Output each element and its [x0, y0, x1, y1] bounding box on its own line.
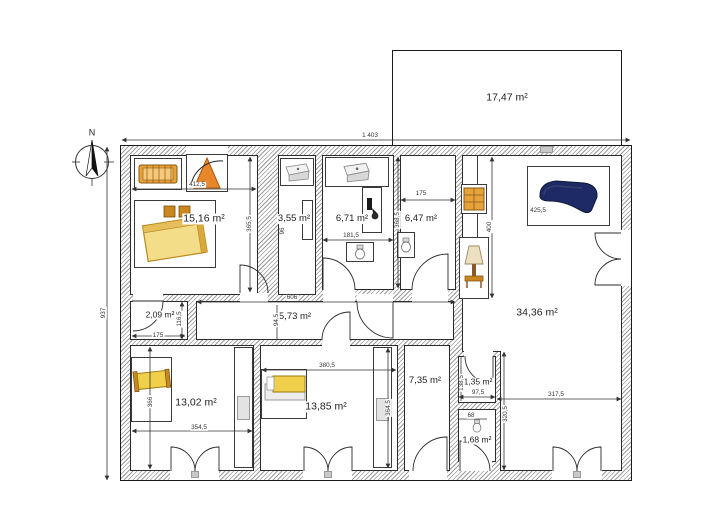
room-area-label: 7,35 m² — [408, 376, 442, 386]
room-area-label: 1,68 m² — [462, 436, 493, 445]
dimension-label: 606 — [286, 295, 299, 301]
threshold-mark — [573, 471, 581, 478]
door-opening — [357, 294, 393, 302]
dimension-label: 96 — [280, 226, 286, 235]
door-opening — [409, 469, 447, 480]
dimension-label: 937 — [101, 307, 107, 320]
room-hallway[interactable] — [196, 301, 454, 340]
floor-lamp-icon[interactable] — [461, 244, 487, 292]
room-area-label: 6,71 m² — [335, 214, 369, 224]
dimension-label: 380,5 — [318, 363, 336, 369]
dimension-label: 317,5 — [547, 392, 565, 398]
dimension-label: 175 — [415, 191, 428, 197]
single-bed-icon[interactable] — [263, 372, 307, 404]
room-area-label: 1,35 m² — [463, 378, 494, 387]
sink-icon[interactable] — [283, 161, 311, 183]
sink-icon[interactable] — [340, 160, 372, 184]
crib-icon[interactable] — [138, 161, 178, 187]
door-opening — [412, 289, 448, 302]
wardrobe-icon[interactable] — [237, 396, 250, 420]
dimension-label: 181,5 — [342, 233, 360, 239]
room-living-lower[interactable] — [500, 352, 622, 471]
room-area-label: 17,47 m² — [485, 92, 528, 103]
dimension-label: 368,5 — [395, 211, 401, 229]
dimension-label: 425,5 — [529, 208, 547, 214]
door-opening — [322, 339, 350, 346]
threshold-mark — [324, 471, 332, 478]
door-opening — [323, 289, 355, 302]
door-opening — [240, 293, 268, 302]
window-mark — [540, 146, 553, 153]
door-opening — [464, 351, 493, 357]
room-utility[interactable] — [404, 345, 450, 471]
room-area-label: 3,55 m² — [277, 214, 311, 224]
compass-north-label: N — [88, 128, 97, 137]
toilet-icon[interactable] — [352, 244, 368, 260]
dimension-label: 138,5 — [459, 374, 465, 392]
dimension-label: 400 — [487, 221, 493, 234]
door-opening — [459, 461, 492, 471]
threshold-mark — [191, 471, 199, 478]
floor-plan: N — [0, 0, 720, 509]
room-area-label: 5,73 m² — [278, 312, 312, 322]
room-area-label: 6,47 m² — [404, 214, 438, 224]
toilet-icon[interactable] — [398, 236, 414, 254]
room-area-label: 34,36 m² — [515, 307, 558, 318]
dimension-label: 1 403 — [361, 133, 379, 139]
dimension-label: 364,5 — [386, 399, 392, 417]
dimension-label: 365,5 — [247, 215, 253, 233]
room-area-label: 13,85 m² — [304, 401, 347, 412]
dimension-label: 94,5 — [274, 313, 280, 327]
dimension-label: 68 — [466, 413, 475, 419]
dimension-label: 412,5 — [188, 182, 206, 188]
living-seam-cover — [501, 351, 621, 353]
dimension-label: 116,5 — [177, 310, 183, 327]
door-opening — [621, 230, 631, 286]
dimension-label: 175 — [152, 333, 165, 339]
dimension-label: 97,5 — [471, 390, 485, 396]
room-area-label: 13,02 m² — [174, 397, 217, 408]
toilet-icon[interactable] — [470, 418, 484, 434]
dimension-label: 354,5 — [190, 425, 208, 431]
dimension-label: 366 — [148, 396, 154, 409]
shelf-icon[interactable] — [463, 187, 485, 211]
room-area-label: 2,09 m² — [145, 311, 176, 320]
dimension-label: 320,5 — [503, 405, 509, 423]
single-bed-icon[interactable] — [132, 364, 172, 398]
room-area-label: 15,16 m² — [182, 213, 225, 224]
